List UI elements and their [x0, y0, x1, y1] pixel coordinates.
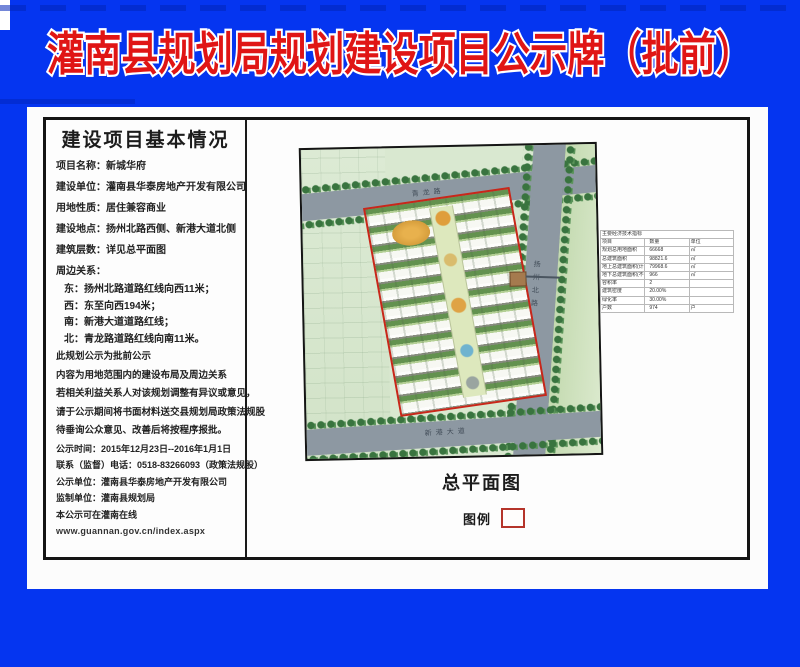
scan-artifact-band	[0, 5, 800, 11]
table-row: 建筑密度20.00%	[601, 288, 734, 296]
scan-artifact-band	[0, 99, 135, 104]
info-line-note-1: 此规划公示为批前公示	[56, 348, 243, 367]
basic-info-lines: 项目名称：新城华府 建设单位：灌南县华泰房地产开发有限公司 用地性质：居住兼容商…	[46, 156, 245, 540]
info-line-note-2: 内容为用地范围内的建设布局及周边关系	[56, 367, 243, 386]
info-line-publicity-time: 公示时间：2015年12月23日--2016年1月1日	[56, 441, 243, 458]
plaza-oval	[390, 218, 433, 248]
info-line-project-name: 项目名称：新城华府	[56, 156, 243, 177]
table-row: 户数974户	[601, 304, 734, 312]
info-line-west: 西：东至向西194米；	[56, 299, 243, 316]
info-line-builder: 建设单位：灌南县华泰房地产开发有限公司	[56, 177, 243, 198]
info-line-note-3: 若相关利益关系人对该规划调整有异议或意见，	[56, 385, 243, 404]
table-row: 总建筑面积98821.6㎡	[601, 255, 734, 263]
info-line-east: 东：扬州北路道路红线向西11米；	[56, 282, 243, 299]
info-line-south: 南：新港大道道路红线；	[56, 315, 243, 332]
info-line-note-5: 待垂询公众意见、改善后将按程序报批。	[56, 422, 243, 441]
info-line-land-use: 用地性质：居住兼容商业	[56, 198, 243, 219]
basic-info-column: 建设项目基本情况 项目名称：新城华府 建设单位：灌南县华泰房地产开发有限公司 用…	[46, 120, 245, 557]
info-line-note-4: 请于公示期间将书面材料送交县规划局政策法规股	[56, 404, 243, 423]
info-line-north: 北：青龙路道路红线向南11米。	[56, 332, 243, 349]
info-line-phone: 联系（监督）电话：0518-83266093（政策法规股）	[56, 457, 243, 474]
info-line-floors: 建筑层数：详见总平面图	[56, 240, 243, 261]
col-header-item: 项目	[601, 239, 645, 247]
table-row: 规划总用地面积66668㎡	[601, 247, 734, 255]
table-row: 地下总建筑面积(不计容)966㎡	[601, 272, 734, 280]
info-line-online-note: 本公示可在灌南在线	[56, 507, 243, 524]
info-line-supervising-unit: 监制单位：灌南县规划局	[56, 490, 243, 507]
notice-panel: 建设项目基本情况 项目名称：新城华府 建设单位：灌南县华泰房地产开发有限公司 用…	[27, 107, 768, 589]
site-plan: 青龙路 扬州北路 新港大道	[299, 142, 603, 461]
col-header-qty: 数量	[645, 239, 689, 247]
central-landscape-axis	[430, 206, 487, 398]
board-title: 灌南县规划局规划建设项目公示牌（批前）	[47, 28, 753, 80]
col-header-unit: 单位	[689, 239, 733, 247]
legend-label: 图例	[463, 509, 491, 528]
board-title-graphic: 灌南县规划局规划建设项目公示牌（批前）	[0, 18, 800, 88]
info-line-publicity-unit: 公示单位：灌南县华泰房地产开发有限公司	[56, 474, 243, 491]
column-divider	[245, 120, 247, 557]
notice-board: { "title": "灌南县规划局规划建设项目公示牌（批前）", "doc":…	[0, 0, 800, 667]
legend-swatch	[501, 508, 525, 528]
east-gate-marker	[509, 271, 526, 286]
plan-caption: 总平面图	[402, 469, 562, 495]
table-row: 绿化率30.00%	[601, 296, 734, 304]
info-line-surroundings: 周边关系：	[56, 261, 243, 282]
table-row: 地上总建筑面积(计容)79968.6㎡	[601, 263, 734, 271]
indicators-table-title: 主要经济技术指标	[601, 231, 734, 239]
basic-info-header: 建设项目基本情况	[48, 128, 243, 154]
info-line-url: www.guannan.gov.cn/index.aspx	[56, 523, 243, 540]
document-frame: 建设项目基本情况 项目名称：新城华府 建设单位：灌南县华泰房地产开发有限公司 用…	[43, 117, 750, 560]
legend: 图例	[463, 506, 525, 530]
info-line-location: 建设地点：扬州北路西侧、新港大道北侧	[56, 219, 243, 240]
indicators-table: 主要经济技术指标 项目 数量 单位 规划总用地面积66668㎡ 总建筑面积988…	[600, 230, 734, 313]
table-row: 容积率2	[601, 280, 734, 288]
